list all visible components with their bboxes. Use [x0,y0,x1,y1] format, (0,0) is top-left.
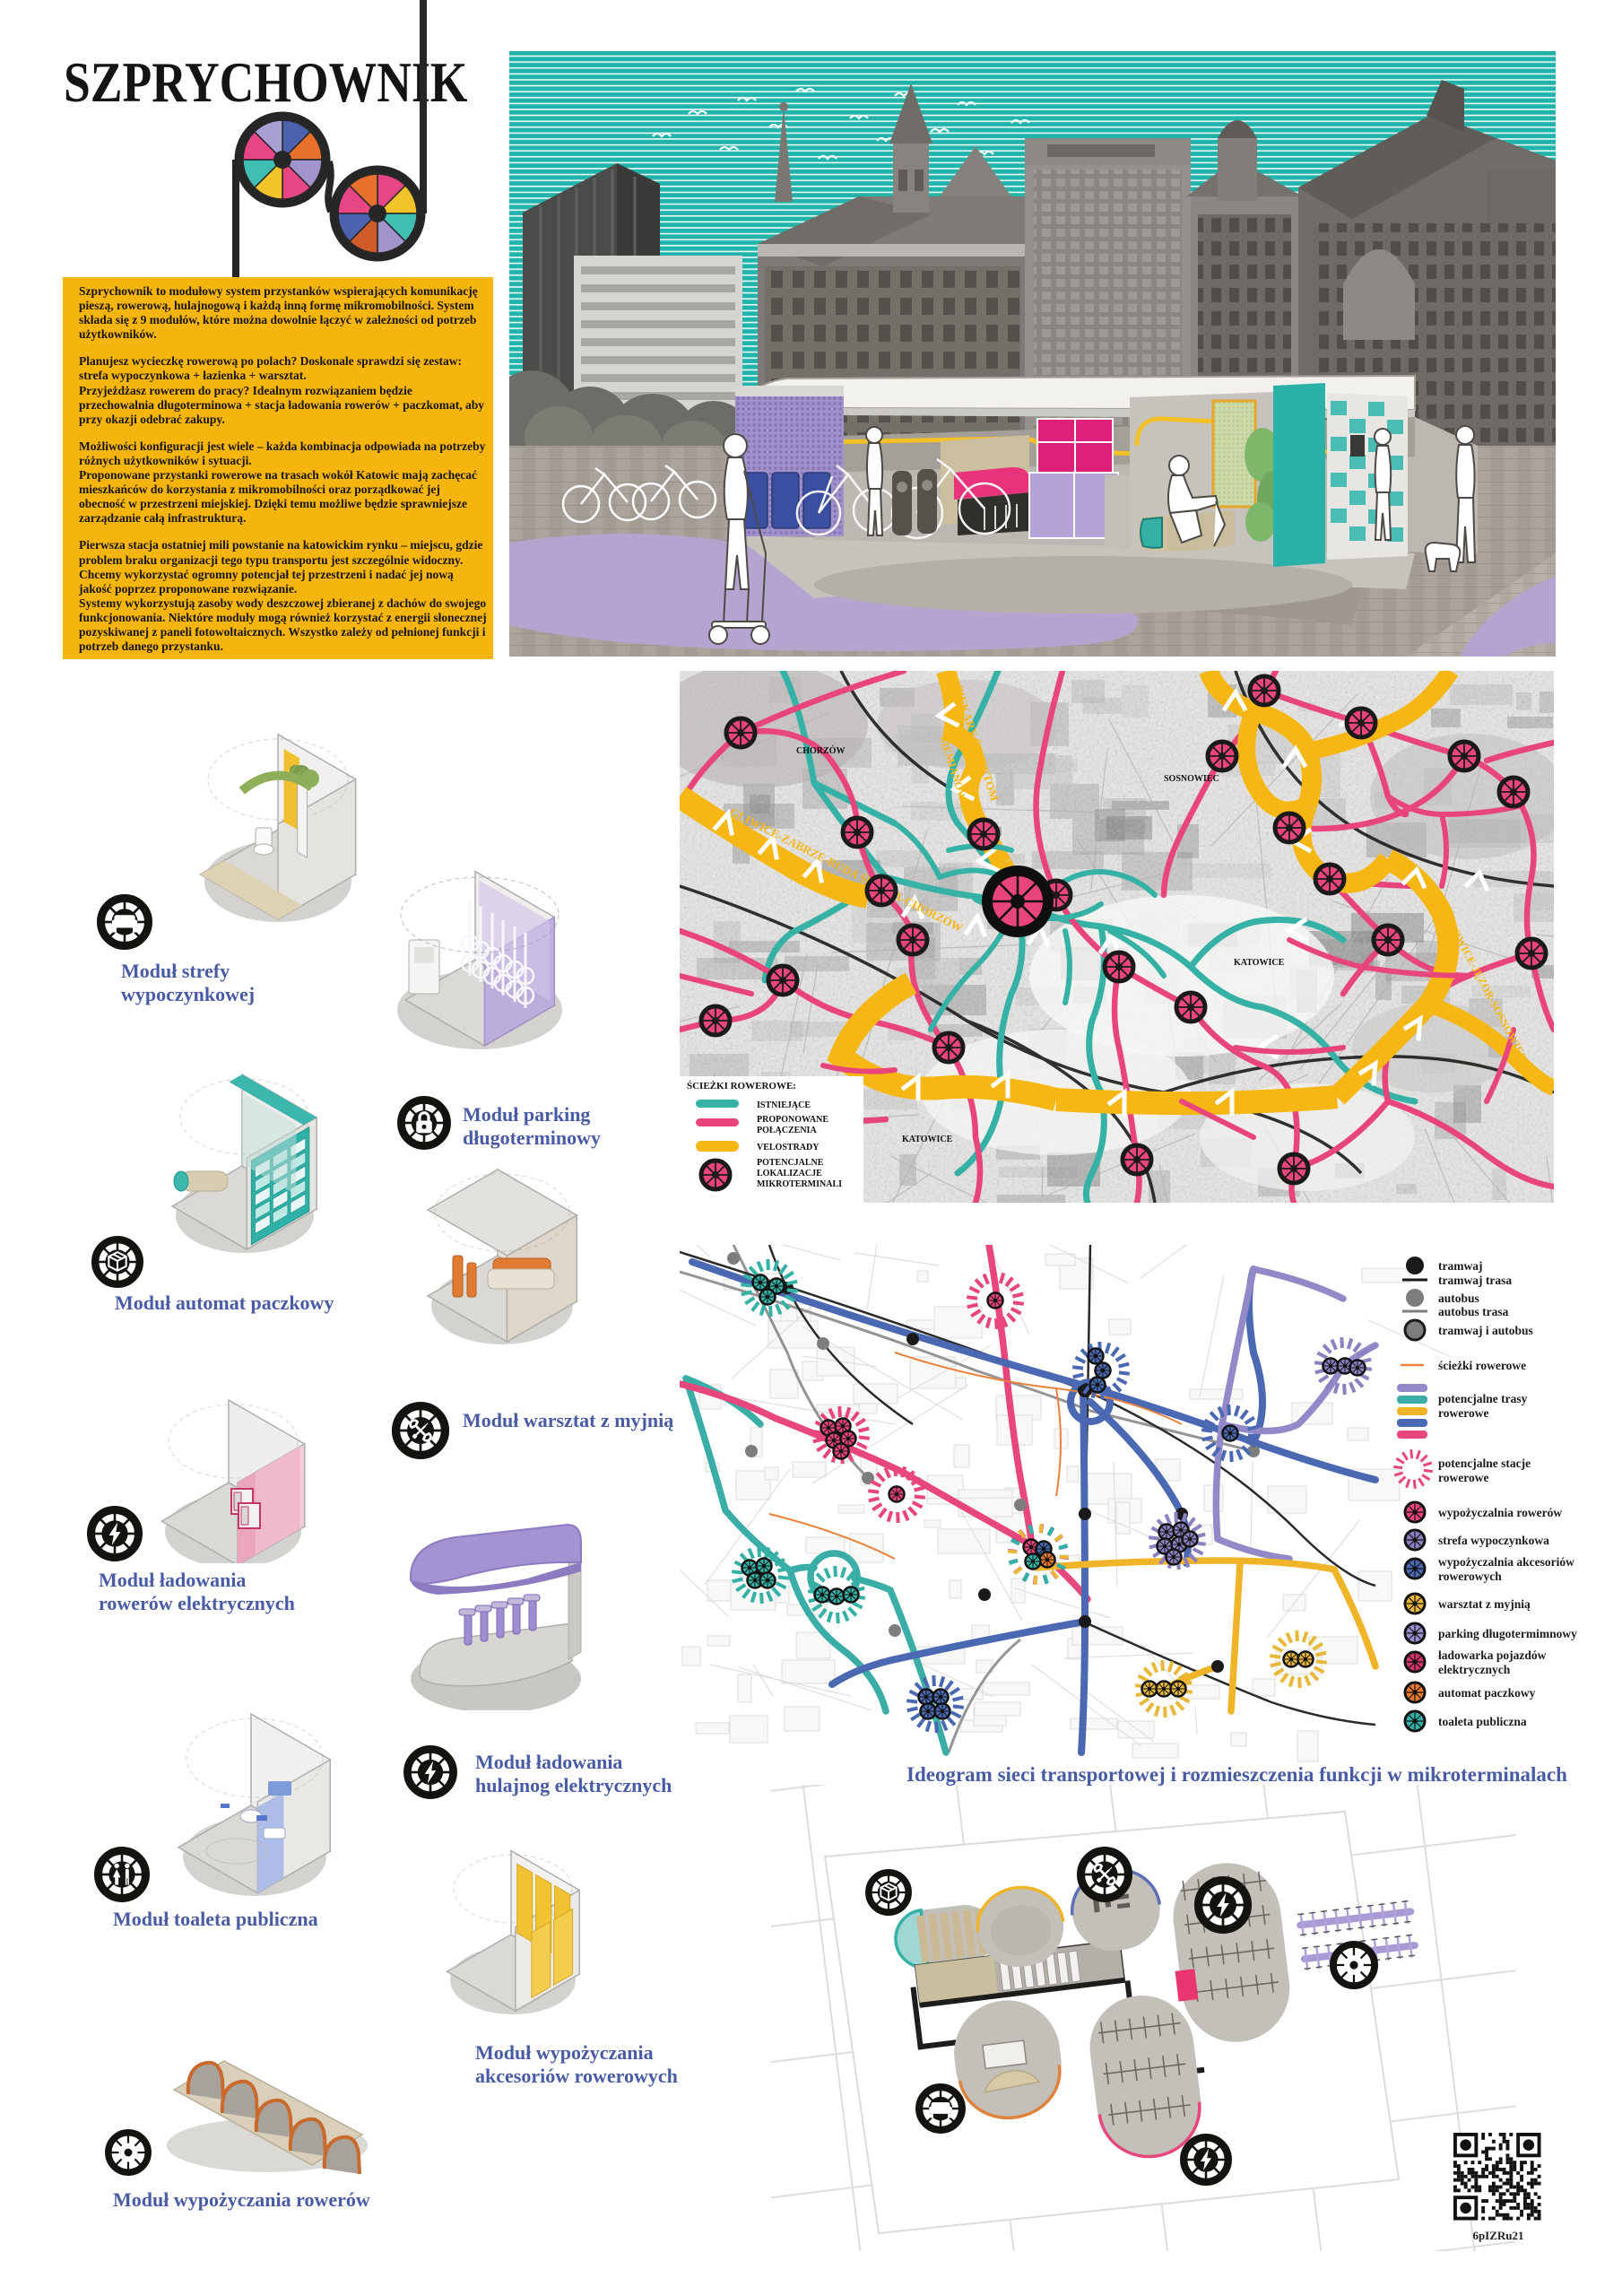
svg-text:automat paczkowy: automat paczkowy [1438,1686,1536,1700]
svg-text:toaleta publiczna: toaleta publiczna [1438,1715,1527,1728]
svg-text:wypożyczalnia akcesoriów: wypożyczalnia akcesoriów [1438,1555,1574,1569]
svg-text:parking długotermimnowy: parking długotermimnowy [1438,1627,1577,1640]
svg-text:autobus trasa: autobus trasa [1438,1305,1509,1318]
svg-text:ŚCIEŻKI ROWEROWE:: ŚCIEŻKI ROWEROWE: [687,1081,796,1091]
svg-text:KATOWICE: KATOWICE [1234,958,1285,968]
svg-text:autobus: autobus [1438,1291,1479,1305]
svg-text:rowerowych: rowerowych [1438,1570,1502,1583]
svg-text:POTENCJALNE: POTENCJALNE [757,1158,824,1168]
svg-text:ISTNIEJĄCE: ISTNIEJĄCE [757,1100,811,1110]
svg-text:potencjalne stacje: potencjalne stacje [1438,1457,1531,1470]
svg-text:LOKALIZACJE: LOKALIZACJE [757,1169,822,1178]
svg-text:KATOWICE: KATOWICE [902,1135,953,1144]
svg-text:POŁĄCZENIA: POŁĄCZENIA [757,1126,817,1135]
svg-text:tramwaj: tramwaj [1438,1259,1482,1273]
svg-text:VELOSTRADY: VELOSTRADY [757,1143,820,1152]
svg-text:rowerowe: rowerowe [1438,1406,1488,1420]
svg-text:elektrycznych: elektrycznych [1438,1663,1511,1676]
svg-text:rowerowe: rowerowe [1438,1471,1488,1484]
svg-text:SOSNOWIEC: SOSNOWIEC [1164,774,1219,784]
svg-text:ścieżki rowerowe: ścieżki rowerowe [1438,1359,1526,1372]
svg-text:PROPONOWANE: PROPONOWANE [757,1115,828,1125]
svg-text:tramwaj i autobus: tramwaj i autobus [1438,1324,1533,1337]
svg-text:potencjalne trasy: potencjalne trasy [1438,1392,1528,1405]
svg-text:tramwaj trasa: tramwaj trasa [1438,1274,1512,1287]
svg-text:strefa wypoczynkowa: strefa wypoczynkowa [1438,1534,1549,1547]
svg-text:ładowarka pojazdów: ładowarka pojazdów [1438,1648,1547,1662]
svg-text:MIKROTERMINALI: MIKROTERMINALI [757,1179,842,1189]
svg-text:warsztat z myjnią: warsztat z myjnią [1438,1597,1531,1611]
svg-text:CHORZÓW: CHORZÓW [796,745,845,756]
svg-text:wypożyczalnia rowerów: wypożyczalnia rowerów [1438,1506,1562,1519]
